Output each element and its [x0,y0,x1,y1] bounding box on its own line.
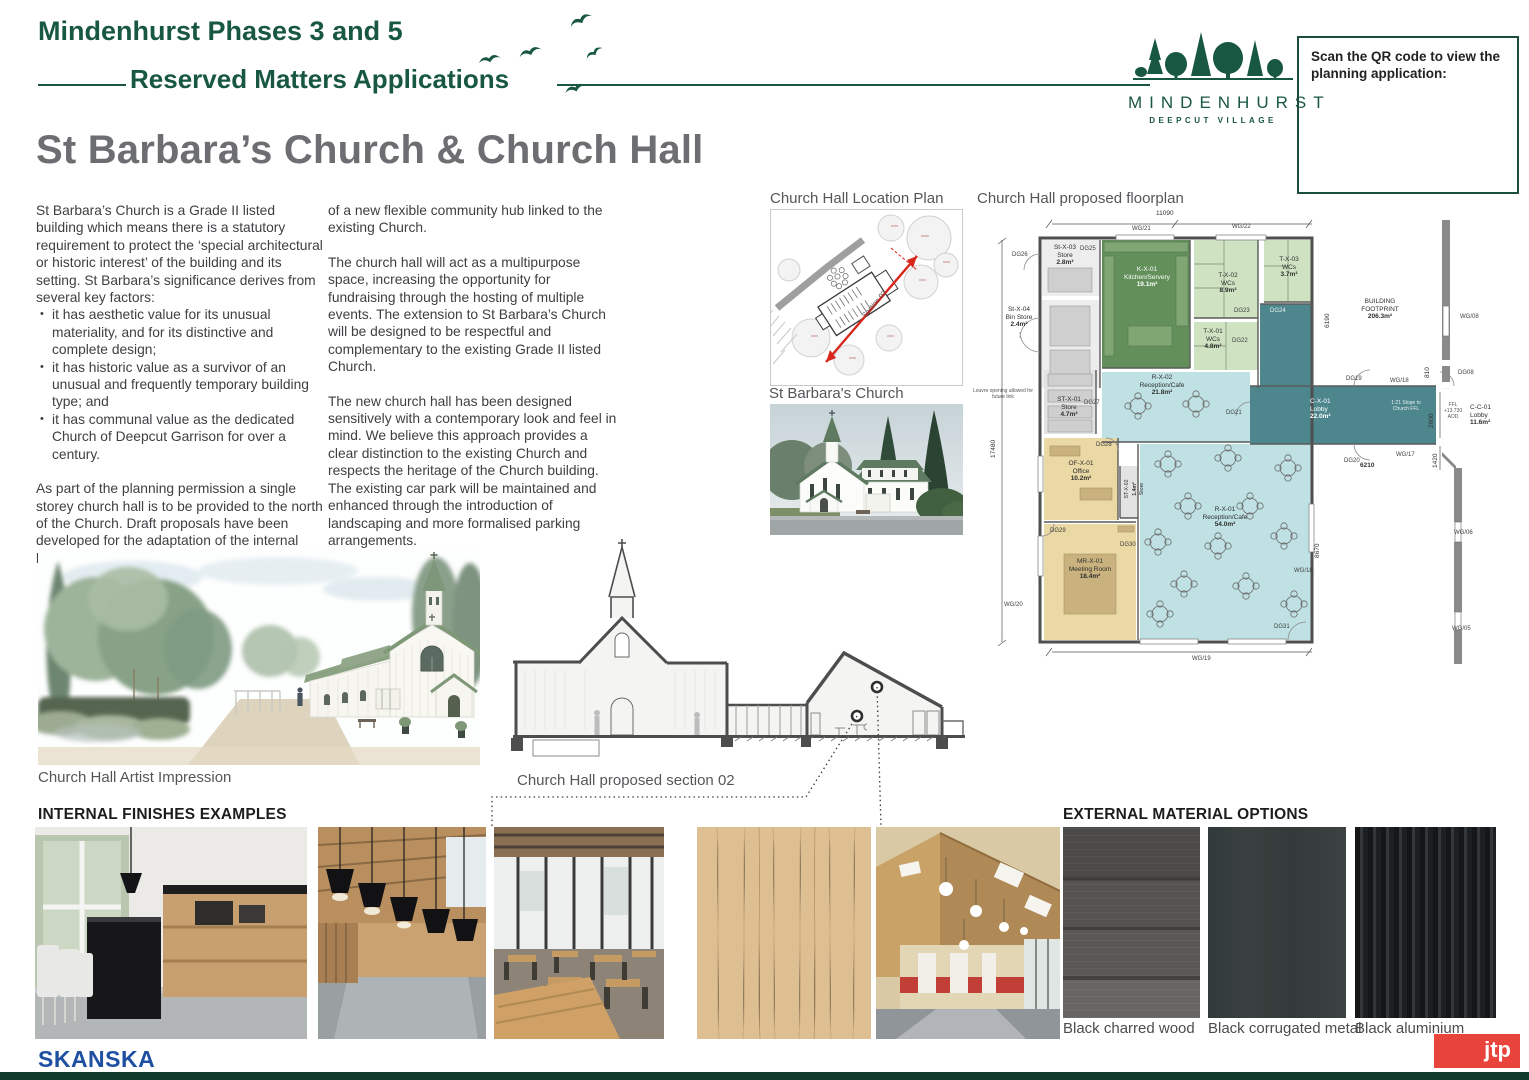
material-label: Black charred wood [1063,1020,1195,1037]
room-label: C-X-01Lobby22.0m² [1310,398,1352,421]
footprint-note: BUILDINGFOOTPRINT206.3m² [1344,298,1416,321]
location-plan-drawing: Section 02 [771,210,962,385]
window-tag: WG/21 [1132,226,1151,232]
church-photo-caption: St Barbara's Church [769,385,904,402]
room-label: K-X-01Kitchen/Servery19.1m² [1114,266,1180,289]
jtp-logo: jtp [1434,1034,1520,1068]
intro-paragraph: The new church hall has been designed se… [328,393,620,550]
door-tag: DG30 [1120,542,1136,548]
ffl-note: FFL +13.730 AOD [1440,402,1466,420]
room-label: R-X-01Reception/Cafe54.0m² [1184,506,1266,529]
intro-paragraph: The church hall will act as a multipurpo… [328,254,620,376]
dimension: 8670 [1314,544,1321,558]
logo-tagline: DEEPCUT VILLAGE [1128,116,1298,125]
location-plan-caption: Church Hall Location Plan [770,190,943,207]
dimension: 810 [1424,367,1431,378]
door-tag: DG29 [1050,528,1066,534]
header-rule-left [38,84,126,86]
door-tag: DG25 [1080,246,1096,252]
window-tag: WG/18 [1390,378,1409,384]
dimension: 6210 [1360,462,1374,469]
skanska-logo: SKANSKA [38,1046,155,1073]
intro-column-1: St Barbara’s Church is a Grade II listed… [36,202,324,584]
door-tag: DG08 [1458,370,1474,376]
window-tag: WG/22 [1232,224,1251,230]
room-label: R-X-02Reception/Cafe21.8m² [1124,374,1200,397]
intro-column-2: of a new flexible community hub linked t… [328,202,620,566]
window-tag: WG/18 [1294,568,1313,574]
external-materials-heading: EXTERNAL MATERIAL OPTIONS [1063,806,1308,824]
room-label: ST-X-021.4m²Store [1124,464,1147,514]
door-tag: DG31 [1274,624,1290,630]
board-title: Mindenhurst Phases 3 and 5 [38,16,403,47]
intro-paragraph: of a new flexible community hub linked t… [328,202,620,237]
swatch-aluminium [1355,827,1496,1018]
slope-note: 1:21 Slope to Church FFL [1388,400,1424,412]
door-tag: DG28 [1096,442,1112,448]
intro-paragraph: St Barbara’s Church is a Grade II listed… [36,202,324,306]
door-tag: DG19 [1346,376,1362,382]
door-tag: DG23 [1234,308,1250,314]
planning-board: Mindenhurst Phases 3 and 5 Reserved Matt… [0,0,1529,1080]
window-tag: WG/08 [1460,314,1479,320]
door-tag: DG26 [1012,252,1028,258]
louvre-note: Louvre opening allowed for future link [970,388,1036,400]
room-label: T-X-02WCs8.9m² [1206,272,1250,295]
door-tag: DG24 [1270,308,1286,314]
artist-caption: Church Hall Artist Impression [38,769,231,786]
photo-hall-interior [876,827,1060,1039]
photo-pendant-lamps [318,827,486,1039]
board-subtitle: Reserved Matters Applications [130,64,509,95]
floorplan-drawing [988,206,1518,676]
location-plan-figure: Section 02 [770,209,963,386]
board-bottom-border [0,1072,1529,1080]
dimension: 1420 [1432,454,1439,468]
window-tag: WG/05 [1452,626,1471,632]
room-label: T-X-01WCs4.8m² [1194,328,1232,351]
list-item: it has communal value as the dedicated C… [40,411,324,463]
significance-list: it has aesthetic value for its unusual m… [36,306,324,463]
window-tag: WG/06 [1454,530,1473,536]
header-rule-right [557,84,1150,86]
door-tag: DG27 [1084,400,1100,406]
room-label: St-X-04Bin Store2.4m² [998,306,1040,329]
list-item: it has historic value as a survivor of a… [40,359,324,411]
door-tag: DG22 [1232,338,1248,344]
qr-panel: Scan the QR code to view the planning ap… [1297,36,1519,194]
swatch-corrugated-metal [1208,827,1346,1018]
qr-instruction: Scan the QR code to view the planning ap… [1311,48,1505,82]
photo-cafe-servery [35,827,307,1039]
room-label: T-X-03WCs3.7m² [1270,256,1308,279]
room-label: MR-X-01Meeting Room18.4m² [1058,558,1122,581]
birds-icon [455,14,605,106]
door-tag: DG21 [1226,410,1242,416]
internal-finishes-heading: INTERNAL FINISHES EXAMPLES [38,806,287,824]
dimension: 17480 [990,440,997,458]
logo-trees-icon [1133,28,1293,86]
room-label: C-C-01Lobby11.6m² [1470,404,1510,427]
dimension: 11090 [1156,210,1174,217]
photo-plywood-texture [697,827,871,1039]
photo-cafe-seating [494,827,664,1039]
list-item: it has aesthetic value for its unusual m… [40,306,324,358]
floorplan-caption: Church Hall proposed floorplan [977,190,1184,207]
page-title: St Barbara’s Church & Church Hall [36,128,703,173]
window-tag: WG/20 [1004,602,1023,608]
window-tag: WG/19 [1192,656,1211,662]
artist-impression [38,549,480,765]
room-label: OF-X-01Office10.2m² [1054,460,1108,483]
swatch-charred-wood [1063,827,1200,1018]
material-label: Black corrugated metal [1208,1020,1361,1037]
leader-lines [480,668,910,830]
logo-name: MINDENHURST [1128,93,1298,113]
floorplan-figure: St-X-03Store2.8m² St-X-04Bin Store2.4m² … [988,206,1518,676]
dimension: 6190 [1324,314,1331,328]
dimension: 2600 [1428,414,1435,428]
mindenhurst-logo: MINDENHURST DEEPCUT VILLAGE [1128,28,1298,125]
door-tag: DG20 [1344,458,1360,464]
church-photo [770,404,963,535]
window-tag: WG/17 [1396,452,1415,458]
